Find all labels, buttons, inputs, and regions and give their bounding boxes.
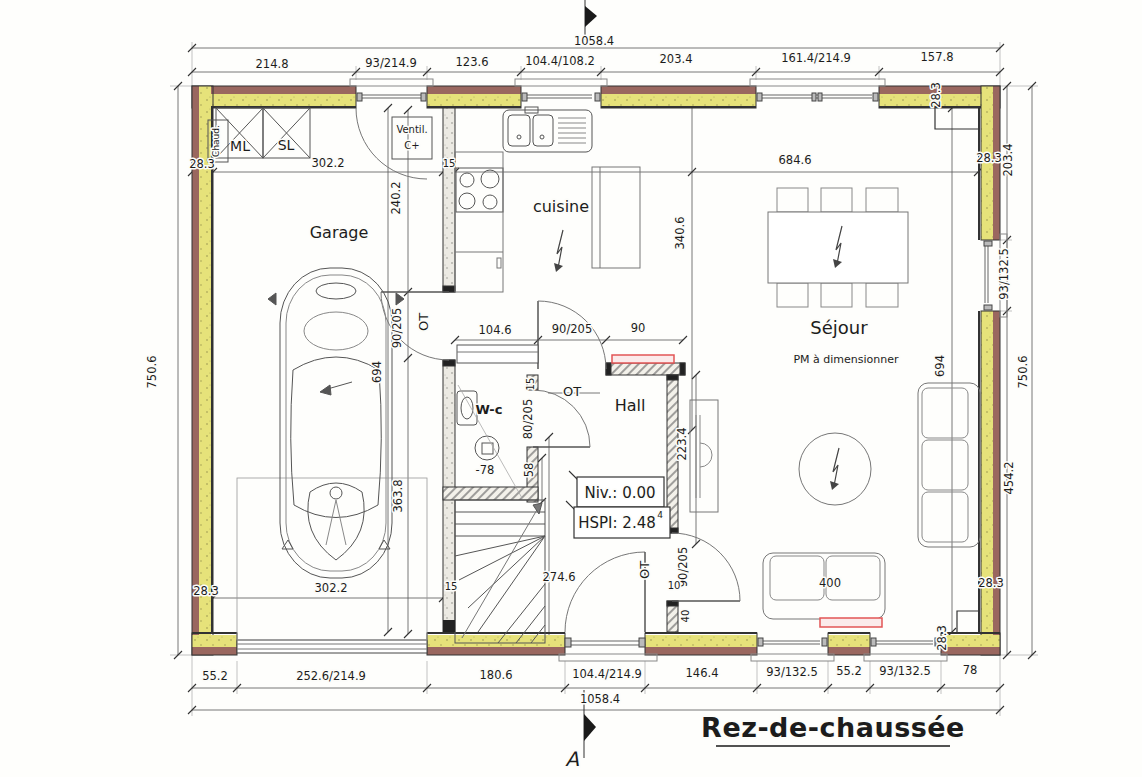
- dim-top-total: 1058.4: [574, 34, 614, 48]
- dim-hall-wall: 223.4: [675, 428, 689, 461]
- tv-cabinet: [690, 400, 718, 512]
- dim-right-seg3: 454.2: [1002, 462, 1016, 495]
- dim-garage-wall: 240.2: [389, 182, 403, 215]
- dim-hall-chain-1: 104.6: [479, 323, 512, 337]
- wall-hall-top: [606, 363, 685, 375]
- dim-right-inset-top: 28.3: [929, 82, 943, 108]
- dim-left-thk-top: 28.3: [189, 157, 215, 171]
- floor-plan-page: 214.893/214.9123.6104.4/108.2203.4161.4/…: [0, 0, 1142, 777]
- level-niv: Niv.: 0.00: [584, 484, 655, 502]
- dim-wc-door: 80/205: [521, 399, 535, 439]
- dim-bottom-seg9: 78: [963, 663, 978, 677]
- dim-right-thk-bottom: 28.3: [978, 576, 1004, 590]
- radiator-sejour: [820, 618, 882, 627]
- dim-top-seg6: 161.4/214.9: [781, 51, 851, 65]
- door-wc: [533, 390, 590, 447]
- dim-kitchen-sejour-width: 684.6: [779, 153, 812, 167]
- label-chaud: Chaud.: [211, 125, 221, 157]
- tag-hall-door: OT: [563, 384, 581, 399]
- dim-hall-door: 90/205: [552, 322, 592, 336]
- note-pm: PM à dimensionner: [793, 353, 899, 366]
- radiator-hall: [612, 355, 674, 363]
- dim-bottom-seg1: 55.2: [202, 669, 228, 683]
- window-kitchen: [515, 79, 607, 101]
- dim-sejour-depth: 694: [933, 355, 947, 377]
- dim-garage-lower: 363.8: [391, 480, 405, 513]
- dim-bottom-seg7: 55.2: [836, 664, 862, 678]
- tag-garage-door: OT: [416, 313, 431, 331]
- dim-bottom-total: 1058.4: [580, 692, 620, 706]
- dim-top-seg2: 93/214.9: [365, 56, 416, 70]
- dim-right-inset-bottom: 28.3: [935, 625, 949, 651]
- tag-sejour-door: OT: [637, 561, 652, 579]
- dim-stair-58: 58: [522, 463, 536, 478]
- label-ventil-c: C+: [404, 140, 419, 151]
- dim-right-total: 750.6: [1016, 356, 1030, 389]
- dim-right-window: 93/132.5: [997, 248, 1011, 299]
- dim-entry-width: 90: [631, 321, 646, 335]
- dimension-lines: [178, 48, 1032, 710]
- dim-left-thk-bottom: 28.3: [193, 584, 219, 598]
- entry-door-swing: [565, 552, 645, 632]
- room-wc: W-c: [476, 402, 503, 417]
- sejour-furniture: [690, 188, 980, 619]
- room-cuisine: cuisine: [533, 197, 589, 216]
- dim-bottom-seg2: 252.6/214.9: [296, 669, 366, 683]
- hall-counter: [457, 345, 538, 363]
- dim-right-thk-top: 28.3: [976, 151, 1002, 165]
- label-sl: SL: [278, 137, 295, 153]
- dimension-ticks: [174, 44, 1036, 714]
- kitchen-sink: [503, 107, 592, 152]
- dim-wall-thk-15: 15: [443, 158, 456, 169]
- dim-top-seg7: 157.8: [921, 50, 954, 64]
- label-ml: ML: [230, 138, 250, 154]
- dim-left-total: 750.6: [145, 356, 159, 389]
- wall-right: [978, 86, 1000, 655]
- window-sejour-top: [750, 79, 885, 101]
- dim-stair-length: 274.6: [543, 570, 576, 584]
- kitchen-stove: [456, 168, 503, 212]
- interior-walls: [443, 108, 685, 632]
- dim-top-seg1: 214.8: [256, 57, 289, 71]
- pendant-symbol-round-table: [830, 448, 839, 490]
- kitchen-counter-left: [455, 152, 503, 292]
- level-hspi: HSPI: 2.48: [578, 514, 656, 532]
- section-flag-bottom: [584, 714, 596, 741]
- dim-top-seg4: 104.4/108.2: [525, 54, 595, 68]
- wall-wc-bottom: [443, 487, 538, 500]
- dim-right-seg1: 203.4: [1001, 144, 1015, 177]
- dim-top-seg5: 203.4: [660, 52, 693, 66]
- room-garage: Garage: [310, 223, 369, 242]
- label-ventil: Ventil.: [396, 124, 427, 135]
- wall-left: [192, 86, 213, 655]
- car: [268, 268, 404, 578]
- room-sejour: Séjour: [810, 317, 868, 338]
- section-markers: [584, 0, 597, 758]
- exterior-walls: [192, 86, 1000, 655]
- section-flag-top: [585, 6, 597, 27]
- sofa-right: [918, 383, 980, 547]
- dim-bottom-seg3: 180.6: [480, 668, 513, 682]
- garage-sectional-door: [237, 640, 427, 653]
- floor-plan-drawing: 214.893/214.9123.6104.4/108.2203.4161.4/…: [0, 0, 1142, 777]
- drawing-title: Rez-de-chaussée: [701, 712, 965, 743]
- dim-bottom-seg6: 93/132.5: [766, 665, 817, 679]
- wc-washbasin: [457, 391, 477, 425]
- dim-bottom-seg8: 93/132.5: [879, 664, 930, 678]
- room-hall: Hall: [615, 396, 646, 415]
- level-hspi-sup: 4: [657, 510, 663, 520]
- dim-garage-door: 90/205: [390, 308, 404, 348]
- dim-bottom-seg5: 146.4: [686, 666, 719, 680]
- dim-kitchen-depth: 340.6: [673, 217, 687, 250]
- dim-wall-15-bottom: 15: [445, 581, 458, 592]
- dim-garage-width-top: 302.2: [312, 156, 345, 170]
- dim-top-seg3: 123.6: [456, 55, 489, 69]
- dim-garage-depth: 694: [370, 361, 384, 383]
- dim-garage-width-bottom: 302.2: [315, 581, 348, 595]
- dim-stub-10: 10: [668, 580, 681, 591]
- dim-wc-wall: 15: [525, 378, 536, 391]
- dim-bottom-seg4: 104.4/214.9: [572, 667, 642, 681]
- wall-garage-kitchen: [443, 108, 455, 292]
- dim-stub-40: 40: [680, 610, 691, 623]
- staircase: [443, 500, 545, 643]
- kitchen-peninsula: [592, 167, 640, 268]
- dim-sofa: 400: [819, 576, 841, 590]
- extension-lines: [170, 42, 1038, 716]
- pendant-symbol-cuisine: [554, 230, 563, 272]
- level-minus-78: -78: [476, 463, 495, 477]
- wc-toilet: [475, 436, 499, 460]
- window-sejour-bottom-1: [751, 638, 834, 661]
- section-marker-a: A: [565, 747, 579, 771]
